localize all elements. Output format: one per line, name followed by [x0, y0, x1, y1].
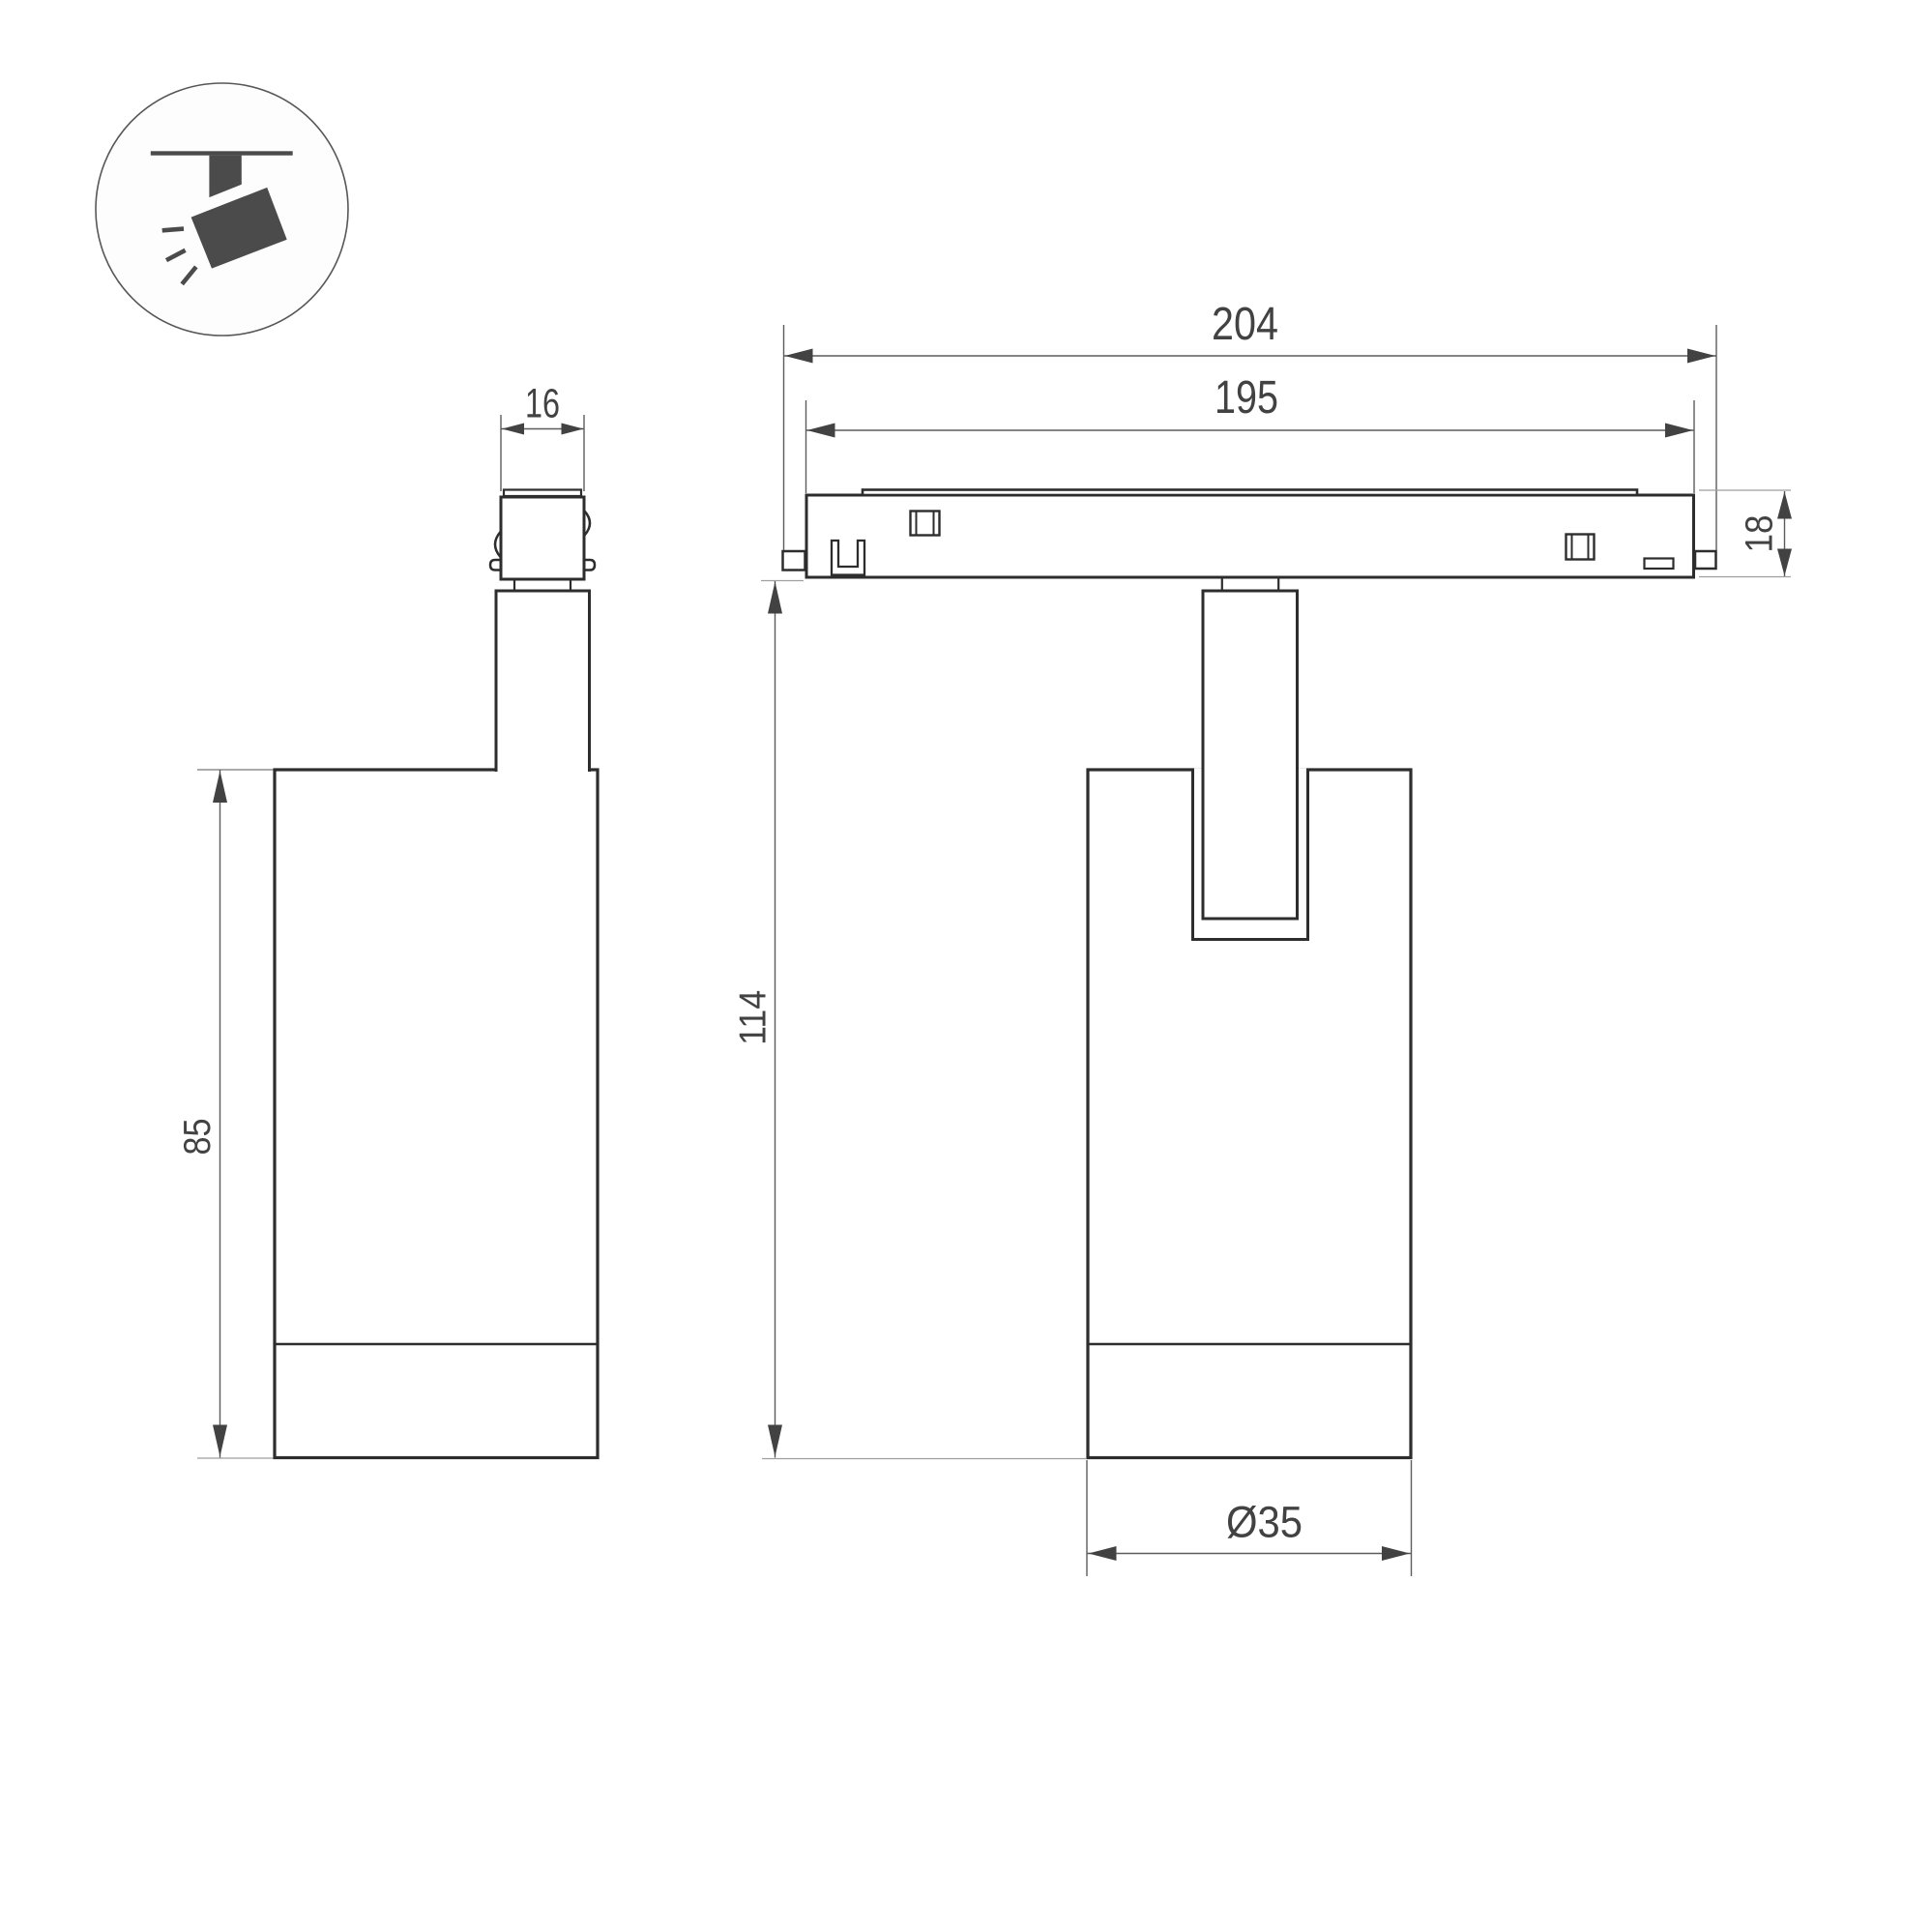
svg-text:85: 85 [177, 1119, 219, 1156]
svg-text:Ø35: Ø35 [1226, 1498, 1303, 1547]
svg-text:204: 204 [1212, 299, 1278, 350]
svg-text:114: 114 [733, 990, 775, 1045]
svg-text:18: 18 [1739, 515, 1781, 553]
svg-text:195: 195 [1215, 372, 1278, 424]
svg-text:16: 16 [525, 382, 560, 427]
